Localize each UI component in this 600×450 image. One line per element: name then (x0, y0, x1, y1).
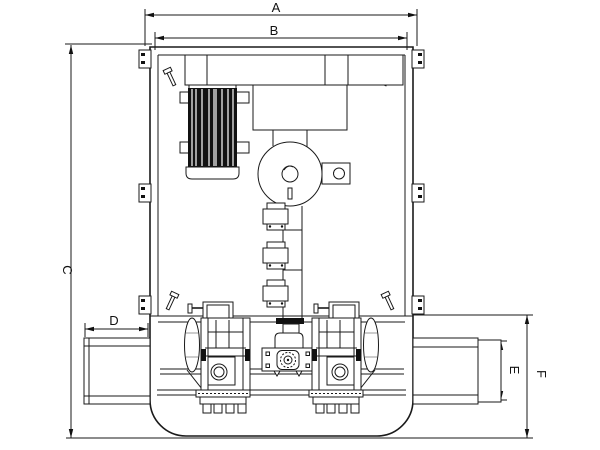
left-pump-t-bolt (188, 304, 192, 313)
left-pump-oval-cover (185, 318, 200, 372)
shaft-coupling-2 (263, 242, 288, 269)
wall-bracket-right-bottom (412, 296, 424, 314)
machine-assembly-drawing: A B C D E F (0, 0, 600, 450)
drive-pulley (258, 142, 350, 206)
top-rail (185, 55, 403, 85)
wall-bracket-left-bottom (139, 296, 151, 314)
shaft-coupling-1 (263, 203, 288, 230)
dimension-d: D (85, 313, 148, 337)
dimension-a-label: A (272, 0, 281, 15)
anchor-pin-bottom-right (381, 291, 396, 311)
right-pump-oval-cover (364, 318, 379, 372)
dimension-b: B (155, 23, 407, 50)
motor-base (186, 167, 239, 179)
electric-motor (180, 85, 249, 179)
dimension-f-label: F (534, 370, 549, 378)
wall-bracket-left-middle (139, 184, 151, 202)
center-gear-plate (262, 318, 313, 376)
right-flange-pipe (413, 338, 501, 404)
base-frame (157, 369, 406, 395)
gearbox-housing (253, 85, 347, 148)
shaft-coupling-3 (263, 280, 288, 307)
anchor-pin-top-left (163, 67, 178, 87)
right-pump-assembly (309, 302, 379, 413)
dimension-e-label: E (507, 366, 522, 375)
wall-bracket-right-middle (412, 184, 424, 202)
wall-bracket-left-top (139, 50, 151, 68)
right-pipe-end-flange (478, 340, 501, 402)
dimension-b-label: B (270, 23, 279, 38)
technical-drawing-page: A B C D E F (0, 0, 600, 450)
anchor-pin-bottom-left (164, 291, 179, 311)
wall-bracket-right-top (412, 50, 424, 68)
left-flange-pipe (84, 338, 150, 404)
left-pump-assembly (185, 302, 251, 413)
dimension-d-label: D (109, 313, 118, 328)
dimension-c-label: C (60, 265, 75, 274)
dimension-a: A (145, 0, 417, 46)
right-pump-t-bolt (314, 304, 318, 313)
